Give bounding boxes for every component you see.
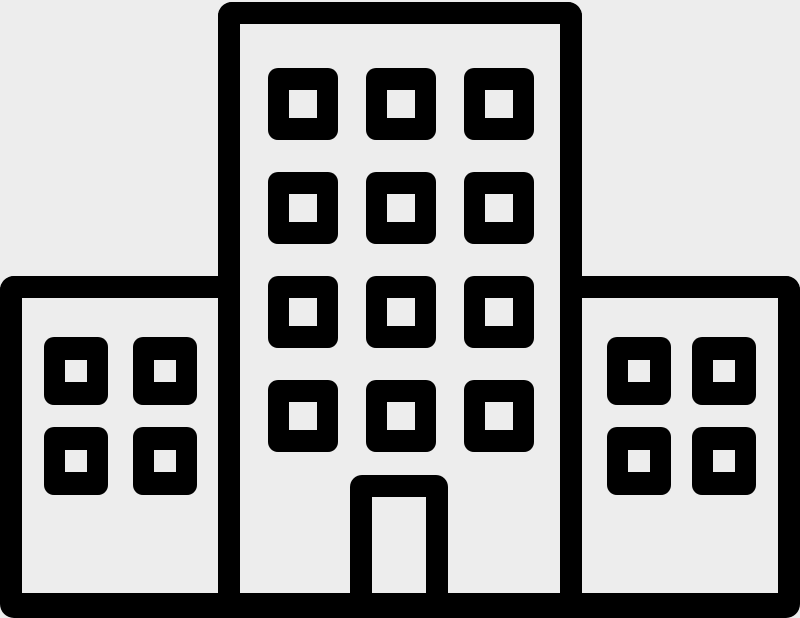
left-wing-window-icon: [133, 337, 197, 405]
right-wing-window-icon: [692, 337, 756, 405]
window-pane: [485, 90, 513, 118]
window-pane: [485, 194, 513, 222]
central-tower-window-icon: [268, 380, 338, 452]
central-tower-window-icon: [464, 276, 534, 348]
window-pane: [65, 360, 87, 382]
window-pane: [289, 298, 317, 326]
left-wing-window-icon: [133, 427, 197, 495]
left-wing-window-icon: [44, 337, 108, 405]
central-tower-window-icon: [366, 276, 436, 348]
central-tower-window-icon: [268, 172, 338, 244]
door-icon: [350, 475, 448, 593]
window-pane: [628, 450, 650, 472]
window-pane: [289, 402, 317, 430]
window-pane: [387, 298, 415, 326]
window-pane: [289, 90, 317, 118]
left-wing-window-icon: [44, 427, 108, 495]
window-pane: [65, 450, 87, 472]
window-pane: [387, 90, 415, 118]
right-wing-window-icon: [692, 427, 756, 495]
right-wing-window-icon: [607, 337, 671, 405]
window-pane: [713, 450, 735, 472]
window-pane: [485, 402, 513, 430]
right-wing: [560, 276, 800, 593]
window-pane: [713, 360, 735, 382]
window-pane: [154, 450, 176, 472]
right-wing-window-icon: [607, 427, 671, 495]
window-pane: [154, 360, 176, 382]
central-tower-window-icon: [268, 68, 338, 140]
central-tower-window-icon: [366, 172, 436, 244]
central-tower-window-icon: [464, 380, 534, 452]
central-tower-window-icon: [366, 380, 436, 452]
building-icon: [0, 0, 800, 618]
window-pane: [387, 402, 415, 430]
left-wing: [0, 276, 240, 593]
central-tower-window-icon: [464, 172, 534, 244]
window-pane: [628, 360, 650, 382]
window-pane: [387, 194, 415, 222]
doorway: [372, 497, 426, 593]
central-tower-window-icon: [464, 68, 534, 140]
window-pane: [289, 194, 317, 222]
ground-line: [0, 593, 800, 618]
central-tower-window-icon: [366, 68, 436, 140]
central-tower-window-icon: [268, 276, 338, 348]
window-pane: [485, 298, 513, 326]
